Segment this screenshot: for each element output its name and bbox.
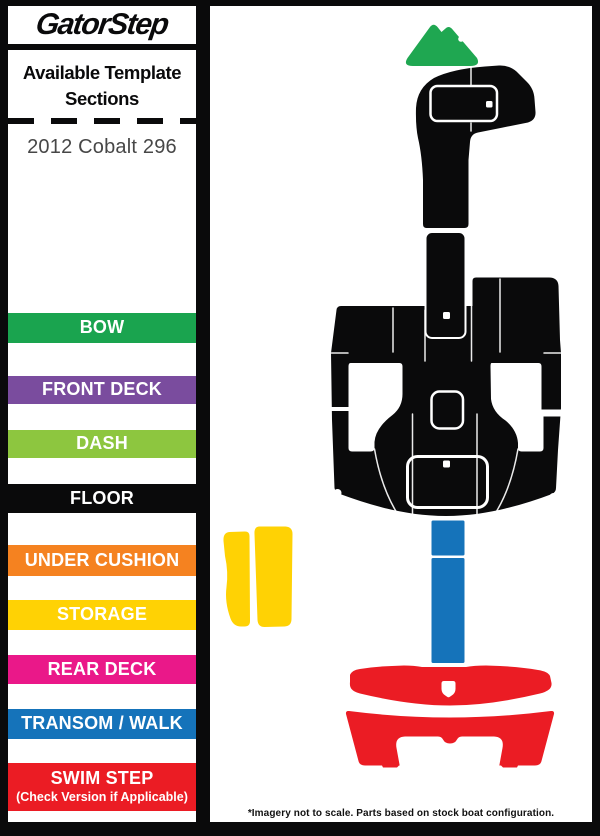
page-title: Available Template Sections xyxy=(8,60,196,112)
band-swim-step: SWIM STEP (Check Version if Applicable) xyxy=(8,763,196,811)
band-swim-step-sublabel: (Check Version if Applicable) xyxy=(16,791,188,805)
band-swim-step-label: SWIM STEP xyxy=(51,769,154,789)
band-under-cushion-label: UNDER CUSHION xyxy=(25,551,180,571)
band-rear-deck-label: REAR DECK xyxy=(48,660,157,680)
logo-box: GatorStep xyxy=(8,6,196,50)
band-transom-walk: TRANSOM / WALK xyxy=(8,709,196,739)
diagram-panel: *Imagery not to scale. Parts based on st… xyxy=(210,6,592,822)
band-dash: DASH xyxy=(8,430,196,458)
band-dash-label: DASH xyxy=(76,434,128,454)
band-front-deck-label: FRONT DECK xyxy=(42,380,162,400)
band-storage-label: STORAGE xyxy=(57,605,147,625)
sidebar: GatorStep Available Template Sections 20… xyxy=(8,6,196,822)
band-front-deck: FRONT DECK xyxy=(8,376,196,404)
band-under-cushion: UNDER CUSHION xyxy=(8,545,196,576)
band-rear-deck: REAR DECK xyxy=(8,655,196,684)
gatorstep-template-poster: { "brand": { "logo_text": "GatorStep" },… xyxy=(0,0,600,836)
band-floor-label: FLOOR xyxy=(70,489,134,509)
band-floor: FLOOR xyxy=(8,484,196,513)
gatorstep-logo: GatorStep xyxy=(34,8,170,42)
model-name: 2012 Cobalt 296 xyxy=(8,136,196,159)
footer-note: *Imagery not to scale. Parts based on st… xyxy=(210,808,592,819)
band-bow: BOW xyxy=(8,313,196,343)
band-storage: STORAGE xyxy=(8,600,196,630)
dashed-divider xyxy=(8,118,196,124)
title-line-2: Sections xyxy=(8,86,196,112)
title-line-1: Available Template xyxy=(8,60,196,86)
band-transom-walk-label: TRANSOM / WALK xyxy=(21,714,183,734)
band-bow-label: BOW xyxy=(80,318,125,338)
